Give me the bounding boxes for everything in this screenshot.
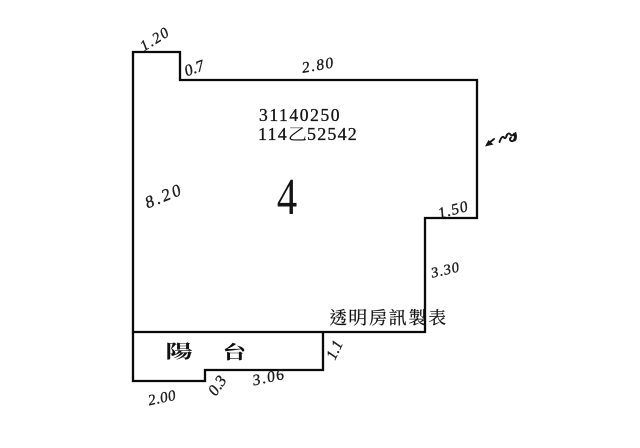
- svg-text:31140250: 31140250: [259, 105, 341, 125]
- svg-text:52542: 52542: [307, 124, 358, 144]
- svg-text:114: 114: [258, 124, 288, 144]
- svg-text:4: 4: [277, 168, 297, 226]
